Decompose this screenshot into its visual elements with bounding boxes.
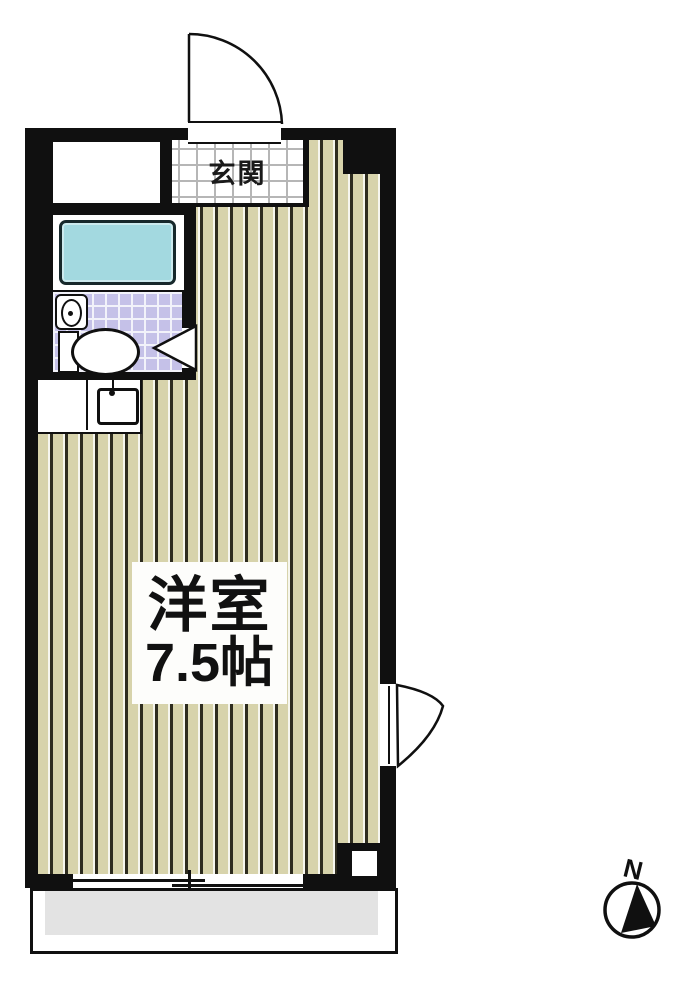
floorplan-canvas: 玄関 洋室 7.5帖 N <box>0 0 673 1000</box>
corner-sink-icon <box>55 294 88 330</box>
compass-icon: N <box>596 848 670 952</box>
genkan-label: 玄関 <box>209 152 267 191</box>
bathtub-icon <box>59 220 176 285</box>
compass-north-letter: N <box>620 852 645 886</box>
closet <box>52 142 160 203</box>
entrance-door-swing-icon <box>185 30 290 125</box>
top-right-pillar <box>343 128 382 174</box>
left-wall-lower <box>25 380 38 888</box>
balcony-deck <box>45 891 378 935</box>
bottom-wall-right <box>303 874 340 888</box>
toilet-door-swing-icon <box>150 324 200 372</box>
counter-divider <box>86 378 88 430</box>
genkan-bottom-line <box>160 203 309 207</box>
left-wall-upper <box>25 128 53 380</box>
side-door-leaf <box>388 686 390 764</box>
room-name: 洋室 <box>148 575 272 636</box>
genkan-right-wall <box>303 138 309 207</box>
pillar-shaft <box>352 851 377 876</box>
faucet-spout <box>109 390 115 396</box>
room-label-box: 洋室 7.5帖 <box>132 562 287 704</box>
bottom-wall-left <box>25 874 73 888</box>
side-door-swing-icon <box>395 680 450 772</box>
toilet-bowl-icon <box>71 328 140 376</box>
kitchen-sink-icon <box>97 388 139 425</box>
genkan-area: 玄関 <box>172 140 303 203</box>
window-pane-left <box>73 879 205 882</box>
window-pane-right <box>172 884 303 887</box>
right-wall <box>380 128 396 888</box>
room-size: 7.5帖 <box>145 636 274 691</box>
